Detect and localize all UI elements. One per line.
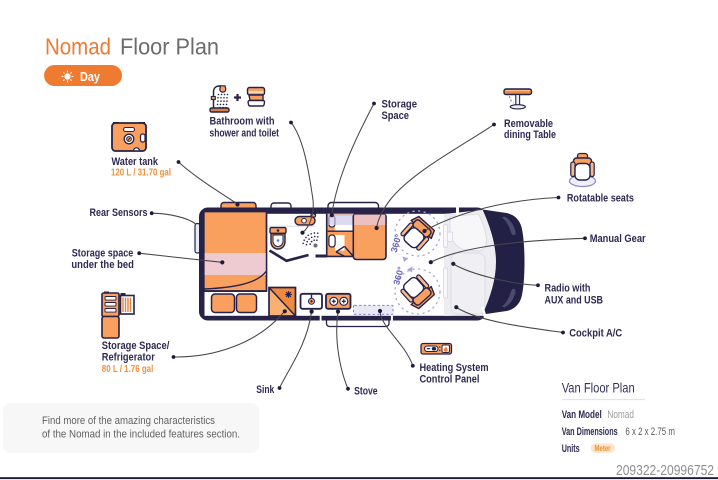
svg-text:Control Panel: Control Panel: [420, 374, 480, 386]
svg-text:NomadFloor Plan: NomadFloor Plan: [45, 34, 219, 60]
svg-text:Nomad: Nomad: [607, 409, 634, 421]
svg-text:Day: Day: [80, 70, 100, 84]
svg-text:Manual Gear: Manual Gear: [590, 233, 646, 245]
svg-text:Refrigerator: Refrigerator: [102, 351, 155, 363]
svg-text:Van Dimensions: Van Dimensions: [562, 426, 618, 438]
svg-text:Van Floor Plan: Van Floor Plan: [562, 381, 635, 396]
svg-text:dining Table: dining Table: [504, 129, 556, 141]
svg-text:under the bed: under the bed: [71, 259, 133, 271]
svg-text:Cockpit A/C: Cockpit A/C: [569, 327, 622, 339]
svg-text:shower and toilet: shower and toilet: [210, 128, 280, 140]
svg-text:Units: Units: [562, 443, 580, 455]
svg-text:80 L / 1.76 gal: 80 L / 1.76 gal: [102, 364, 154, 375]
svg-text:Sink: Sink: [256, 384, 274, 396]
svg-text:120 L / 31.70 gal: 120 L / 31.70 gal: [111, 168, 171, 179]
svg-text:Van Model: Van Model: [562, 409, 602, 421]
svg-text:Rear Sensors: Rear Sensors: [90, 207, 148, 219]
svg-text:Storage: Storage: [382, 99, 418, 111]
svg-text:Water tank: Water tank: [112, 156, 159, 168]
svg-text:Find more of the amazing chara: Find more of the amazing characteristics: [42, 415, 215, 427]
svg-text:Space: Space: [382, 110, 410, 122]
svg-text:6 x 2 x 2.75 m: 6 x 2 x 2.75 m: [625, 426, 675, 438]
svg-text:209322-20996752: 209322-20996752: [616, 462, 714, 479]
svg-text:Meter: Meter: [595, 443, 612, 453]
svg-text:Rotatable seats: Rotatable seats: [567, 192, 634, 204]
svg-text:AUX and USB: AUX and USB: [545, 295, 604, 307]
svg-text:Storage space: Storage space: [72, 248, 134, 260]
svg-text:of the Nomad in the included f: of the Nomad in the included features se…: [42, 429, 240, 441]
svg-text:Heating System: Heating System: [420, 362, 489, 374]
svg-text:Bathroom with: Bathroom with: [210, 116, 275, 128]
svg-text:Stove: Stove: [354, 385, 378, 397]
svg-text:Radio with: Radio with: [545, 283, 591, 295]
svg-text:Storage Space/: Storage Space/: [102, 340, 170, 352]
